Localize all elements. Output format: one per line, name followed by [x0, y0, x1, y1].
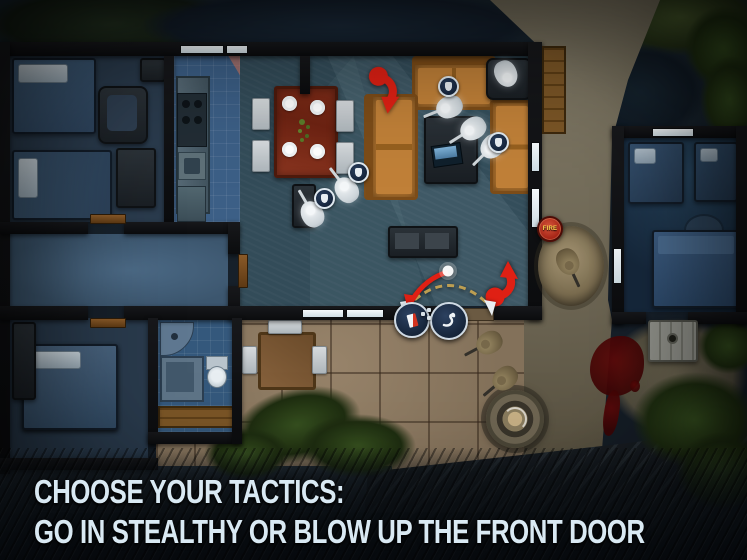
- waypoint-path-dot: [427, 308, 431, 312]
- food-items: [299, 119, 305, 125]
- patio-table: [258, 332, 316, 390]
- dresser: [12, 322, 36, 400]
- bed-pillow: [29, 351, 81, 369]
- nightstand: [140, 58, 166, 82]
- guest-wall-bottom-a: [612, 312, 646, 324]
- wall-hall-top-a: [0, 222, 88, 234]
- garden-bench: [158, 406, 236, 428]
- plate: [310, 100, 325, 115]
- window-marker: [531, 142, 540, 172]
- stove: [177, 93, 207, 147]
- unit-class-badge[interactable]: [438, 76, 459, 97]
- sideboard-panel: [425, 233, 449, 249]
- sneak-glyph: [439, 311, 459, 331]
- wood-porch: [542, 46, 566, 134]
- breach-door-waypoint-icon[interactable]: [394, 302, 430, 338]
- wall-hall-right-a: [228, 222, 240, 254]
- bed-pillow: [700, 148, 718, 162]
- bed: [628, 142, 684, 204]
- wall-bath-bottom: [148, 432, 242, 444]
- fire-alarm-badge: FIRE: [537, 216, 563, 242]
- laptop-screen: [434, 146, 457, 160]
- door-leaf[interactable]: [90, 318, 126, 328]
- dining-chair: [252, 140, 270, 172]
- hallway-floor: [10, 234, 228, 306]
- toilet-bowl: [207, 366, 227, 388]
- cellar-hatch[interactable]: [648, 320, 698, 362]
- window-marker: [652, 128, 694, 137]
- laptop: [431, 142, 464, 168]
- bed-pillow: [18, 64, 68, 83]
- patio-chair: [242, 346, 257, 374]
- bed-large: [652, 230, 740, 308]
- window-marker: [613, 248, 622, 284]
- window-marker: [346, 309, 384, 318]
- window-marker: [226, 45, 248, 54]
- patio-bench: [268, 320, 302, 334]
- guest-wall-right: [736, 126, 747, 324]
- fridge: [177, 186, 206, 222]
- dining-chair: [252, 98, 270, 130]
- armchair: [98, 86, 148, 144]
- guest-wall-left: [612, 126, 624, 324]
- window-marker: [180, 45, 224, 54]
- sink-basin: [184, 158, 200, 174]
- bed: [12, 150, 112, 220]
- stove-burner: [182, 100, 190, 108]
- bed-blanket: [22, 344, 118, 430]
- wall-bedroom-kitchen: [164, 56, 174, 222]
- caption-line-1: CHOOSE YOUR TACTICS:: [34, 475, 344, 508]
- bed-pillow: [634, 148, 656, 164]
- door-leaf[interactable]: [238, 254, 248, 288]
- plate: [282, 96, 297, 111]
- door-leaf[interactable]: [90, 214, 126, 224]
- sideboard-panel: [395, 233, 419, 249]
- waypoint-path-dot: [427, 316, 431, 320]
- bed: [694, 142, 738, 202]
- unit-class-badge[interactable]: [314, 188, 335, 209]
- unit-class-badge[interactable]: [488, 132, 509, 153]
- fire-alarm-label: FIRE: [543, 226, 557, 232]
- wall-bath-right: [232, 318, 242, 444]
- wall-bottom-a: [0, 306, 88, 320]
- bathtub: [160, 356, 204, 402]
- bed: [12, 58, 96, 134]
- wall-left: [0, 42, 10, 474]
- caption-line-2: GO IN STEALTHY OR BLOW UP THE FRONT DOOR: [34, 515, 645, 548]
- tub-basin: [166, 362, 194, 392]
- sneak-move-waypoint-icon[interactable]: [430, 302, 468, 340]
- blood-spot: [630, 380, 640, 392]
- sideboard: [388, 226, 458, 258]
- bed-pillow: [18, 158, 38, 198]
- window-marker: [302, 309, 344, 318]
- patio-chair: [312, 346, 327, 374]
- dining-chair: [336, 100, 354, 132]
- blanket-fold: [658, 236, 734, 254]
- plate: [282, 142, 297, 157]
- unit-class-badge[interactable]: [348, 162, 369, 183]
- threat-direction-arrow-icon: [362, 64, 407, 116]
- armchair-cushion: [107, 95, 137, 131]
- plate: [310, 144, 325, 159]
- shower-drain: [171, 333, 178, 340]
- caption-band: CHOOSE YOUR TACTICS: GO IN STEALTHY OR B…: [0, 448, 747, 560]
- breach-charge-glyph: [406, 313, 418, 328]
- kitchen-sink: [178, 152, 206, 180]
- wall-hall-top-b: [124, 222, 238, 234]
- game-map-viewport[interactable]: FIRE CHOOSE YOUR TACTICS: GO IN STEALTHY…: [0, 0, 747, 560]
- wardrobe: [116, 148, 156, 208]
- wall-top: [0, 42, 542, 56]
- wall-kitchen-stub: [300, 56, 310, 94]
- wall-bath-left: [148, 318, 158, 444]
- waypoint-path-dot: [421, 312, 425, 316]
